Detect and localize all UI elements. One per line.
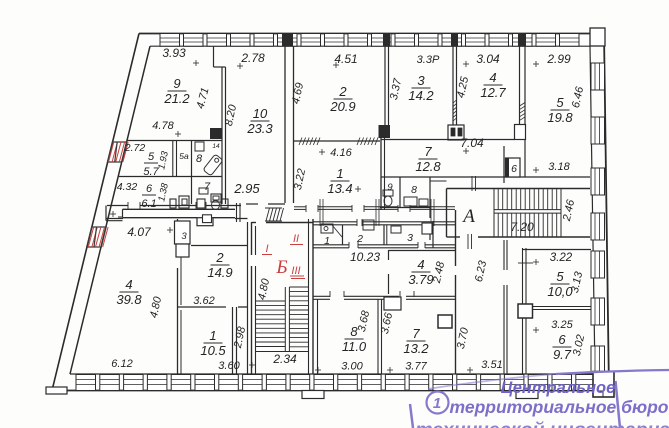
svg-text:4.78: 4.78: [152, 120, 174, 132]
svg-text:7.04: 7.04: [460, 136, 484, 150]
svg-text:1: 1: [324, 235, 330, 247]
svg-text:14.2: 14.2: [408, 88, 434, 103]
svg-text:4.80: 4.80: [256, 277, 272, 301]
svg-text:6.46: 6.46: [570, 85, 586, 109]
svg-text:20.9: 20.9: [329, 99, 355, 114]
svg-text:6: 6: [511, 163, 517, 175]
svg-text:6: 6: [146, 183, 153, 195]
svg-text:7: 7: [204, 181, 211, 193]
svg-text:I: I: [265, 243, 268, 255]
svg-text:7.20: 7.20: [510, 220, 534, 234]
svg-text:3.70: 3.70: [455, 326, 471, 350]
svg-text:3.22: 3.22: [292, 168, 308, 191]
svg-text:10.23: 10.23: [350, 250, 380, 264]
svg-text:3: 3: [407, 232, 413, 244]
svg-text:12.8: 12.8: [415, 159, 441, 174]
svg-text:23.3: 23.3: [246, 121, 273, 136]
svg-text:1: 1: [209, 328, 216, 343]
svg-text:территориальное бюро: территориальное бюро: [450, 397, 669, 417]
svg-text:3.00: 3.00: [341, 361, 363, 373]
svg-text:6.23: 6.23: [473, 259, 489, 283]
svg-text:6.1: 6.1: [141, 198, 156, 210]
svg-text:6: 6: [558, 332, 566, 347]
svg-text:11.0: 11.0: [342, 339, 367, 354]
svg-text:8: 8: [411, 184, 417, 196]
svg-text:5: 5: [556, 95, 564, 110]
svg-text:3.93: 3.93: [162, 46, 186, 60]
svg-text:4.69: 4.69: [290, 82, 306, 105]
svg-text:технической инвентаризаци: технической инвентаризаци: [415, 419, 669, 428]
svg-text:3.18: 3.18: [548, 161, 570, 173]
svg-text:2.98: 2.98: [232, 325, 249, 350]
svg-text:4.16: 4.16: [330, 147, 352, 159]
svg-text:3.68: 3.68: [356, 309, 372, 333]
svg-text:1.93: 1.93: [156, 150, 171, 171]
svg-text:10.5: 10.5: [200, 343, 226, 358]
svg-text:5: 5: [148, 151, 155, 163]
svg-text:1.38: 1.38: [156, 182, 171, 203]
svg-text:8: 8: [196, 153, 203, 165]
svg-text:12.7: 12.7: [480, 85, 506, 100]
svg-text:5а: 5а: [179, 151, 189, 161]
svg-text:II: II: [293, 233, 299, 245]
svg-text:3.22: 3.22: [550, 252, 573, 264]
svg-text:Центральное: Центральное: [501, 379, 616, 397]
svg-text:3.51: 3.51: [481, 359, 502, 371]
svg-text:21.2: 21.2: [163, 91, 190, 106]
svg-text:1: 1: [336, 166, 343, 181]
svg-text:4.07: 4.07: [127, 225, 152, 239]
svg-text:9: 9: [387, 182, 393, 193]
svg-text:7: 7: [424, 144, 432, 159]
svg-text:19.8: 19.8: [547, 110, 573, 125]
svg-text:4.71: 4.71: [195, 86, 212, 110]
svg-text:13.4: 13.4: [327, 181, 352, 196]
svg-text:3.60: 3.60: [218, 360, 240, 372]
svg-text:5: 5: [556, 269, 564, 284]
svg-text:4.80: 4.80: [148, 295, 164, 319]
svg-text:4.51: 4.51: [334, 52, 357, 66]
svg-text:2.95: 2.95: [233, 181, 260, 196]
svg-text:2.99: 2.99: [546, 52, 571, 66]
svg-text:4.32: 4.32: [117, 181, 138, 193]
svg-text:3: 3: [181, 231, 187, 242]
svg-text:39.8: 39.8: [116, 292, 142, 307]
svg-text:3.04: 3.04: [476, 52, 500, 66]
svg-text:6.12: 6.12: [111, 358, 132, 370]
svg-text:2.46: 2.46: [561, 198, 578, 223]
svg-text:4: 4: [125, 277, 132, 292]
svg-text:Б: Б: [275, 257, 287, 278]
svg-text:III: III: [291, 265, 300, 277]
svg-text:9: 9: [173, 76, 180, 91]
svg-text:9.7: 9.7: [553, 347, 572, 362]
svg-text:13.2: 13.2: [403, 341, 429, 356]
svg-text:3.02: 3.02: [571, 334, 587, 357]
svg-text:1: 1: [433, 395, 441, 412]
svg-text:2.48: 2.48: [431, 260, 448, 285]
svg-text:2: 2: [356, 233, 363, 245]
svg-text:3.62: 3.62: [193, 295, 214, 307]
svg-text:2.78: 2.78: [240, 51, 265, 65]
svg-text:14.9: 14.9: [207, 265, 232, 280]
svg-text:3.3Р: 3.3Р: [417, 54, 440, 66]
svg-text:7: 7: [412, 326, 420, 341]
svg-text:3.77: 3.77: [405, 361, 427, 373]
svg-text:2.34: 2.34: [272, 352, 297, 366]
svg-text:3.79: 3.79: [408, 272, 433, 287]
svg-text:2: 2: [215, 250, 224, 265]
svg-text:3.25: 3.25: [551, 319, 573, 331]
svg-text:4.25: 4.25: [455, 75, 471, 99]
svg-text:3.37: 3.37: [388, 77, 404, 101]
svg-text:2: 2: [338, 84, 347, 99]
svg-text:4: 4: [417, 257, 424, 272]
svg-text:3.13: 3.13: [569, 270, 585, 294]
svg-text:3: 3: [417, 73, 425, 88]
svg-text:А: А: [461, 206, 475, 227]
svg-text:4: 4: [489, 70, 496, 85]
svg-text:2.72: 2.72: [124, 142, 146, 154]
svg-text:14: 14: [212, 143, 220, 150]
svg-text:10: 10: [253, 106, 268, 121]
